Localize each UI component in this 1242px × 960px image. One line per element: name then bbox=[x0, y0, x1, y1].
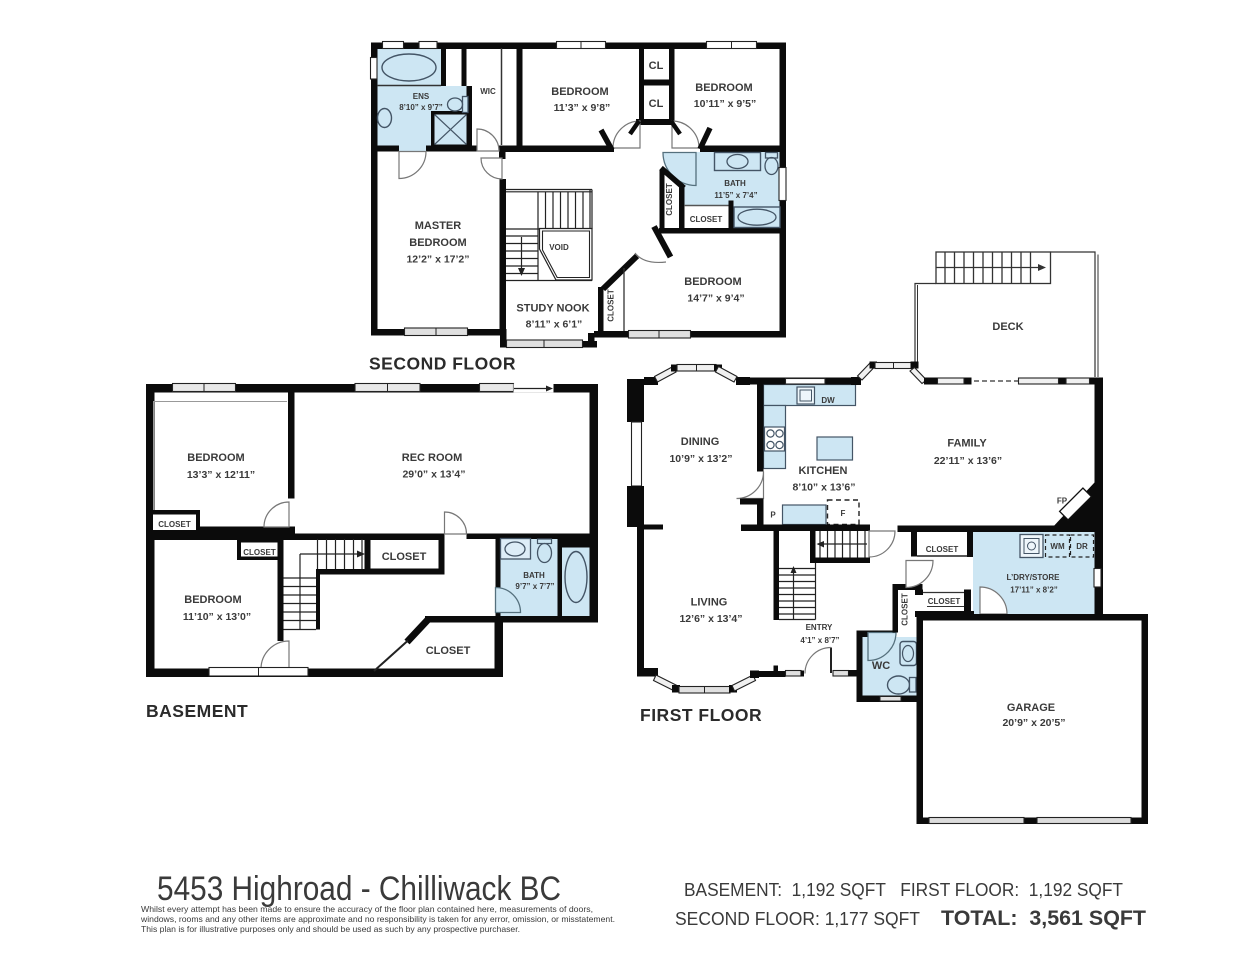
svg-text:8’11” x 6’1”: 8’11” x 6’1” bbox=[526, 319, 583, 331]
svg-text:WM: WM bbox=[1050, 542, 1065, 551]
svg-text:GARAGE: GARAGE bbox=[1007, 702, 1055, 714]
svg-text:8’10” x 9’7”: 8’10” x 9’7” bbox=[399, 103, 443, 112]
svg-text:BEDROOM: BEDROOM bbox=[684, 276, 741, 288]
svg-text:VOID: VOID bbox=[549, 243, 569, 252]
svg-text:BASEMENT: 1,192 SQFT FIRST: BASEMENT: 1,192 SQFT FIRST FLOOR: 1,192 … bbox=[684, 879, 1123, 900]
svg-text:WIC: WIC bbox=[480, 87, 496, 96]
svg-text:BEDROOM: BEDROOM bbox=[695, 82, 752, 94]
svg-text:CL: CL bbox=[649, 98, 664, 110]
svg-text:FIRST FLOOR: FIRST FLOOR bbox=[640, 705, 762, 725]
svg-text:windows, rooms and any other i: windows, rooms and any other items are a… bbox=[140, 914, 615, 924]
svg-text:12’6” x 13’4”: 12’6” x 13’4” bbox=[679, 613, 742, 625]
svg-text:10’11” x 9’5”: 10’11” x 9’5” bbox=[694, 98, 756, 110]
svg-text:CL: CL bbox=[649, 60, 664, 72]
svg-text:22’11” x 13’6”: 22’11” x 13’6” bbox=[934, 455, 1002, 467]
svg-text:REC ROOM: REC ROOM bbox=[402, 452, 463, 464]
svg-text:FP: FP bbox=[1057, 497, 1068, 506]
svg-text:CLOSET: CLOSET bbox=[426, 645, 471, 657]
svg-text:CLOSET: CLOSET bbox=[928, 597, 961, 606]
svg-text:DECK: DECK bbox=[992, 321, 1023, 333]
svg-text:ENS: ENS bbox=[413, 92, 430, 101]
svg-text:20’9” x 20’5”: 20’9” x 20’5” bbox=[1002, 717, 1065, 729]
svg-text:8’10” x 13’6”: 8’10” x 13’6” bbox=[792, 482, 855, 494]
svg-text:10’9” x 13’2”: 10’9” x 13’2” bbox=[669, 453, 732, 465]
svg-text:CLOSET: CLOSET bbox=[901, 593, 910, 626]
svg-text:CLOSET: CLOSET bbox=[926, 545, 959, 554]
svg-text:F: F bbox=[841, 509, 846, 518]
svg-text:FAMILY: FAMILY bbox=[947, 438, 987, 450]
svg-text:BEDROOM: BEDROOM bbox=[187, 452, 244, 464]
svg-text:11’5” x 7’4”: 11’5” x 7’4” bbox=[714, 191, 757, 200]
svg-text:MASTER: MASTER bbox=[415, 220, 462, 232]
svg-text:29’0” x 13’4”: 29’0” x 13’4” bbox=[402, 469, 465, 481]
svg-text:BATH: BATH bbox=[724, 179, 746, 188]
svg-text:BATH: BATH bbox=[523, 571, 545, 580]
svg-text:P: P bbox=[770, 511, 776, 520]
svg-text:L’DRY/STORE: L’DRY/STORE bbox=[1007, 573, 1061, 582]
svg-text:BEDROOM: BEDROOM bbox=[184, 594, 241, 606]
svg-text:12’2” x 17’2”: 12’2” x 17’2” bbox=[406, 254, 469, 266]
svg-text:SECOND FLOOR: SECOND FLOOR bbox=[369, 354, 516, 374]
svg-text:CLOSET: CLOSET bbox=[382, 551, 427, 563]
svg-text:SECOND FLOOR: 1,177 SQFT: SECOND FLOOR: 1,177 SQFT bbox=[675, 908, 920, 929]
svg-text:11’10” x 13’0”: 11’10” x 13’0” bbox=[183, 611, 251, 623]
svg-text:BASEMENT: BASEMENT bbox=[146, 701, 248, 721]
svg-text:4’1” x 8’7”: 4’1” x 8’7” bbox=[800, 636, 839, 645]
svg-text:CLOSET: CLOSET bbox=[607, 289, 616, 322]
svg-text:17’11” x 8’2”: 17’11” x 8’2” bbox=[1010, 586, 1058, 595]
svg-text:LIVING: LIVING bbox=[691, 597, 728, 609]
svg-text:STUDY NOOK: STUDY NOOK bbox=[516, 303, 589, 315]
svg-text:TOTAL: 3,561 SQFT: TOTAL: 3,561 SQFT bbox=[941, 907, 1146, 930]
svg-text:9’7” x 7’7”: 9’7” x 7’7” bbox=[515, 582, 554, 591]
svg-text:This plan is for illustrative: This plan is for illustrative purposes o… bbox=[141, 924, 520, 934]
svg-text:CLOSET: CLOSET bbox=[158, 520, 191, 529]
svg-text:DW: DW bbox=[821, 396, 835, 405]
svg-text:CLOSET: CLOSET bbox=[690, 215, 723, 224]
svg-text:5453 Highroad - Chilliwack BC: 5453 Highroad - Chilliwack BC bbox=[157, 870, 561, 908]
svg-text:CLOSET: CLOSET bbox=[243, 548, 276, 557]
svg-text:Whilst every attempt has been: Whilst every attempt has been made to en… bbox=[141, 904, 593, 914]
svg-text:CLOSET: CLOSET bbox=[665, 183, 674, 216]
svg-text:DR: DR bbox=[1076, 542, 1088, 551]
svg-text:13’3” x 12’11”: 13’3” x 12’11” bbox=[187, 469, 255, 481]
svg-text:KITCHEN: KITCHEN bbox=[799, 465, 848, 477]
svg-text:DINING: DINING bbox=[681, 436, 720, 448]
svg-text:14’7” x 9’4”: 14’7” x 9’4” bbox=[687, 293, 744, 305]
svg-text:ENTRY: ENTRY bbox=[806, 623, 833, 632]
svg-text:BEDROOM: BEDROOM bbox=[409, 237, 466, 249]
svg-text:WC: WC bbox=[872, 660, 890, 672]
svg-text:BEDROOM: BEDROOM bbox=[551, 86, 608, 98]
svg-text:11’3” x 9’8”: 11’3” x 9’8” bbox=[554, 102, 611, 114]
